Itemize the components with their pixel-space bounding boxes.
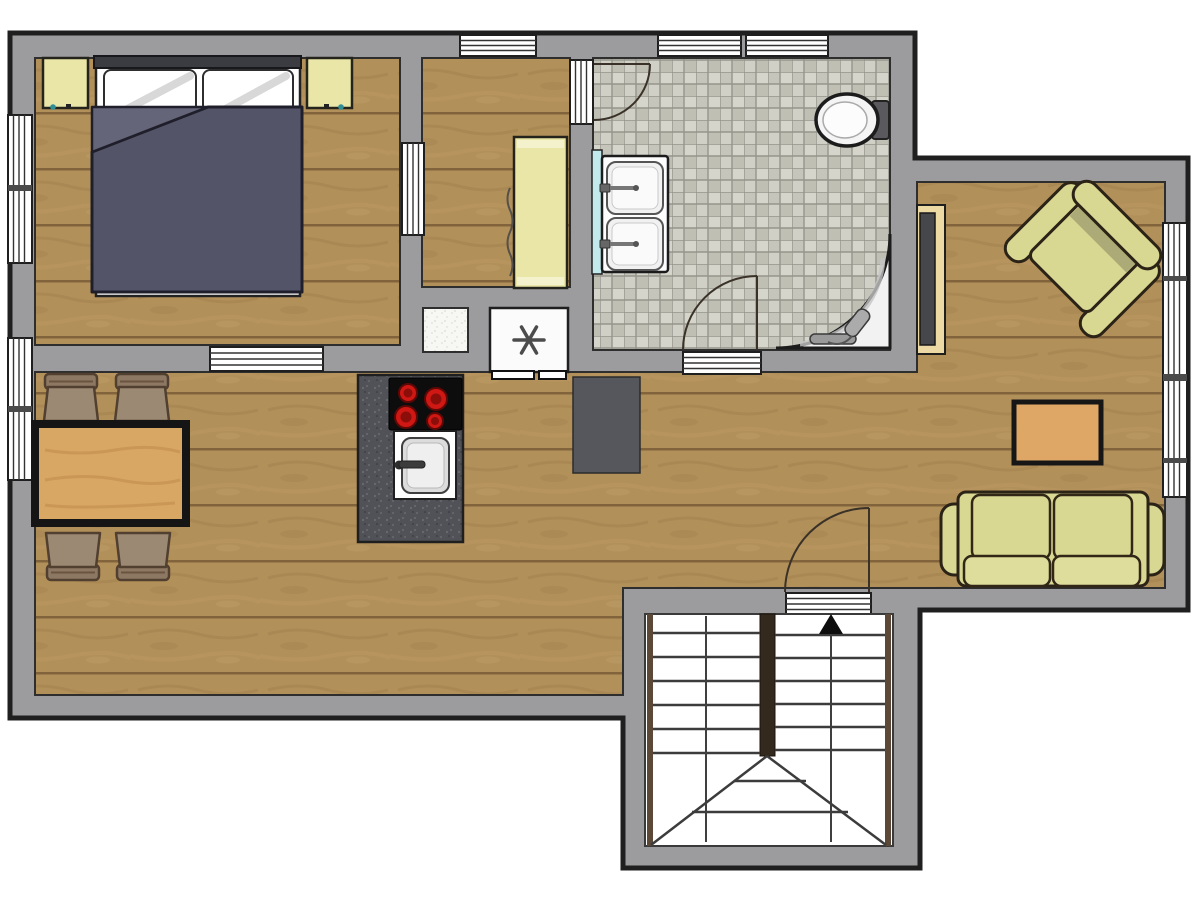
bed-headboard (94, 56, 301, 68)
window-left-dining (8, 338, 32, 480)
dining-chair (46, 533, 100, 580)
staircase (645, 614, 893, 846)
coffee-table (1014, 402, 1101, 463)
nightstand-right (307, 58, 352, 110)
freezer-handle (492, 371, 534, 379)
sofa-seat-cushion (972, 495, 1050, 559)
window-left-bedroom (8, 115, 32, 263)
sofa-seat-cushion (1054, 495, 1132, 559)
double-bed (92, 56, 302, 296)
window-top-hallway (460, 35, 536, 56)
double-sink-vanity (592, 150, 668, 274)
sofa-back-cushion (964, 556, 1050, 586)
floor-plan-svg (0, 0, 1200, 900)
freezer-handle (539, 371, 566, 379)
nightstand-left (43, 58, 88, 110)
floor-plan-canvas (0, 0, 1200, 900)
door-bathroom-main (683, 352, 761, 374)
kitchen-island (358, 375, 463, 542)
opening-bedroom-hallway (402, 143, 424, 235)
window-top-bathroom-right (746, 35, 828, 56)
tv-board (917, 205, 945, 354)
tv-screen (920, 213, 935, 345)
stair-divider-wall (760, 614, 775, 756)
dining-chair (116, 533, 170, 580)
toilet (816, 94, 889, 146)
white-cabinet (423, 308, 468, 352)
nightstand-knob (50, 104, 56, 110)
dining-chair (44, 374, 98, 421)
sofa (941, 492, 1164, 586)
island-sink (394, 431, 456, 499)
nightstand-knob (338, 104, 344, 110)
stair-stringer-right (885, 614, 891, 846)
door-stairs-main (786, 593, 871, 615)
dark-counter (573, 377, 640, 473)
wardrobe (508, 137, 568, 288)
opening-bedroom-main (210, 347, 323, 371)
stair-stringer-left (647, 614, 653, 846)
dining-table (35, 424, 186, 523)
window-top-bathroom-left (658, 35, 741, 56)
vanity-backsplash (592, 150, 602, 274)
freezer (490, 308, 568, 379)
sofa-back-cushion (1053, 556, 1140, 586)
dining-chair (115, 374, 169, 421)
window-right-living (1163, 223, 1187, 497)
door-hallway-bathroom (570, 60, 593, 124)
